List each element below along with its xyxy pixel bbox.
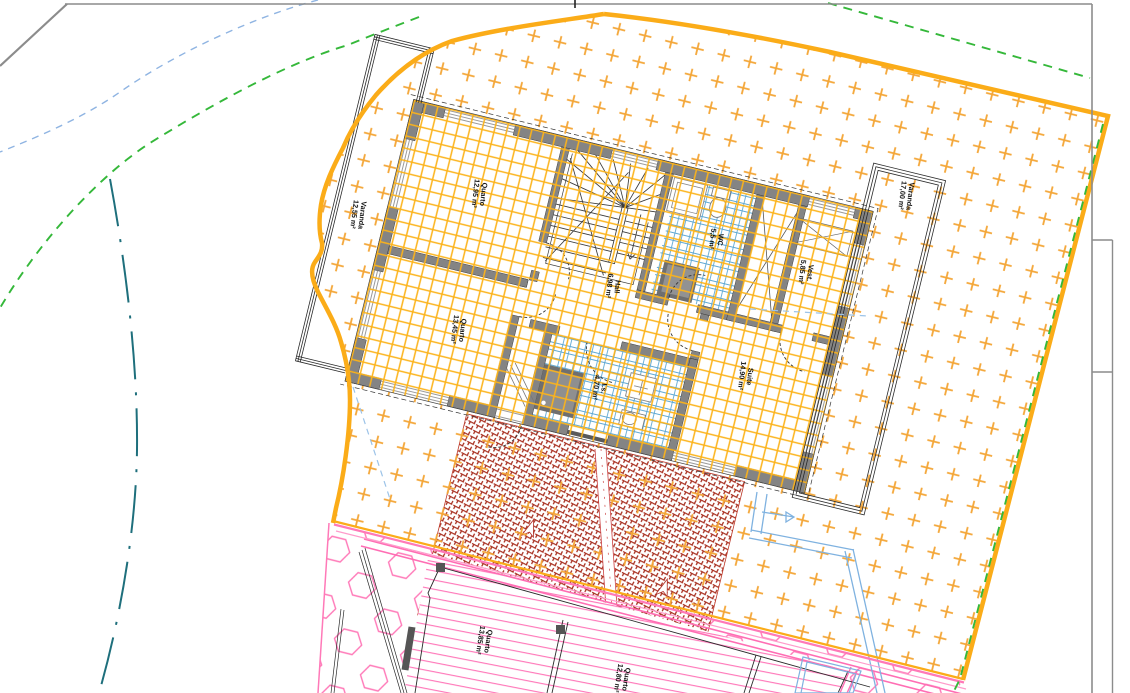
svg-text:Varanda17,00 m²: Varanda17,00 m² — [896, 180, 916, 211]
svg-text:Varanda12,55 m²: Varanda12,55 m² — [348, 199, 368, 230]
svg-text:Quarto13,45 m²: Quarto13,45 m² — [449, 315, 469, 346]
svg-text:Quarto12,95 m²: Quarto12,95 m² — [470, 179, 490, 210]
